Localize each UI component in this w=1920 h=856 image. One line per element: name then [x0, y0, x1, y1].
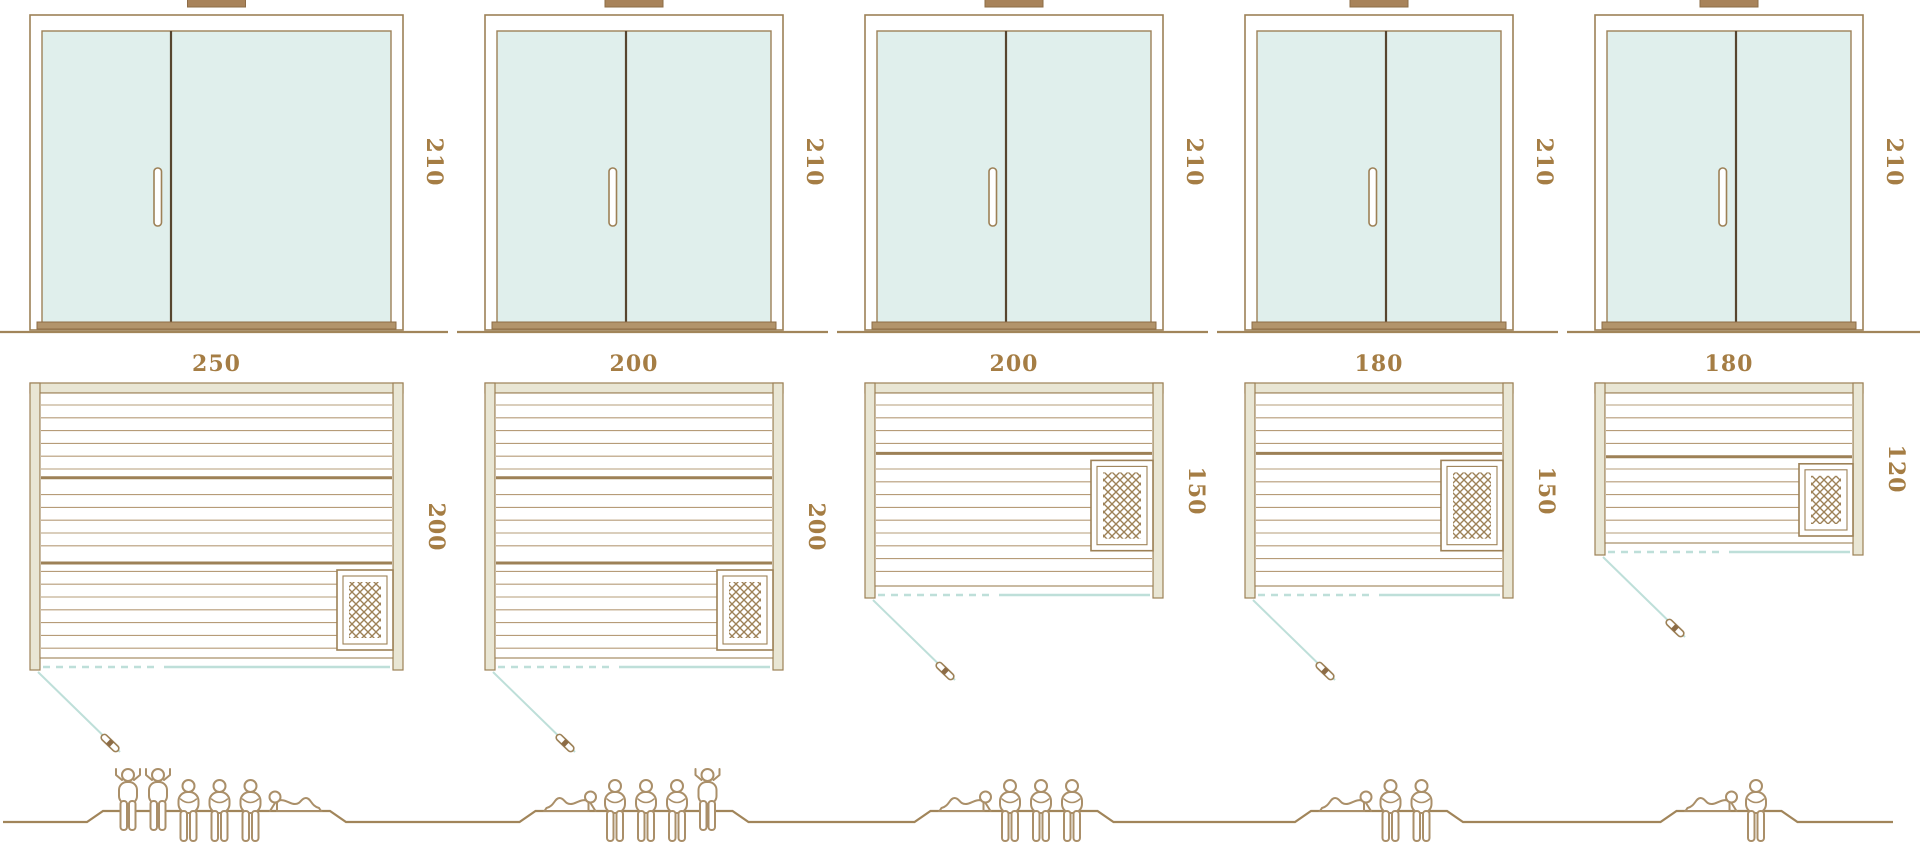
capacity-group-sauna-200x200 — [545, 769, 720, 841]
plan-width-dimension: 180 — [1705, 351, 1754, 377]
person-sitting-icon — [241, 780, 261, 841]
plan-depth-dimension: 150 — [1533, 466, 1559, 515]
door-threshold — [1602, 322, 1856, 329]
door-top-marker — [1350, 0, 1408, 7]
door-handle-icon — [154, 168, 162, 226]
plan-width-dimension: 250 — [192, 351, 241, 377]
door-handle-icon — [1369, 168, 1377, 226]
sauna-unit-sauna-200x150-floor-plan — [865, 383, 1163, 681]
door-top-marker — [188, 0, 246, 7]
door-handle-icon — [609, 168, 617, 226]
sauna-unit-sauna-250x200-door-elevation — [0, 0, 448, 332]
person-standing-icon — [116, 769, 140, 830]
person-sitting-icon — [1746, 780, 1766, 841]
heater-icon — [337, 570, 393, 650]
door-height-dimension: 210 — [1181, 138, 1207, 187]
heater-icon — [717, 570, 773, 650]
plan-depth-dimension: 200 — [803, 502, 829, 551]
person-sitting-icon — [1062, 780, 1082, 841]
heater-icon — [1799, 464, 1853, 536]
glass-panels — [42, 31, 391, 323]
heater-icon — [1091, 460, 1153, 550]
door-height-dimension: 210 — [1881, 138, 1907, 187]
person-sitting-icon — [1381, 780, 1401, 841]
door-height-dimension: 210 — [1531, 138, 1557, 187]
door-top-marker — [1700, 0, 1758, 7]
plan-depth-dimension: 120 — [1883, 445, 1909, 494]
sauna-unit-sauna-180x150-door-elevation — [1217, 0, 1558, 332]
swing-door-handle-icon — [555, 733, 575, 753]
glass-panels — [1607, 31, 1851, 323]
person-sitting-icon — [1031, 780, 1051, 841]
sauna-size-comparison-diagram: 210 250 200 210 200 200 210 200 150 210 … — [0, 0, 1920, 856]
person-standing-icon — [146, 769, 170, 830]
swing-door-handle-icon — [1665, 618, 1685, 638]
person-lying-icon — [1320, 792, 1372, 812]
door-handle-icon — [1719, 168, 1727, 226]
person-lying-icon — [270, 792, 322, 812]
heater-icon — [1441, 460, 1503, 550]
sauna-unit-sauna-250x200-floor-plan — [30, 383, 403, 753]
glass-panels — [1257, 31, 1501, 323]
person-sitting-icon — [210, 780, 230, 841]
person-sitting-icon — [605, 780, 625, 841]
swing-door-handle-icon — [1315, 661, 1335, 681]
sauna-unit-sauna-200x200-floor-plan — [485, 383, 783, 753]
door-top-marker — [605, 0, 663, 7]
door-handle-icon — [989, 168, 997, 226]
sauna-unit-sauna-180x120-floor-plan — [1595, 383, 1863, 638]
person-sitting-icon — [636, 780, 656, 841]
person-sitting-icon — [1000, 780, 1020, 841]
plan-width-dimension: 200 — [610, 351, 659, 377]
door-threshold — [492, 322, 776, 329]
person-standing-icon — [696, 769, 720, 830]
door-threshold — [1252, 322, 1506, 329]
person-lying-icon — [1686, 792, 1738, 812]
sauna-unit-sauna-200x150-door-elevation — [837, 0, 1208, 332]
person-sitting-icon — [1412, 780, 1432, 841]
plan-width-dimension: 180 — [1355, 351, 1404, 377]
person-sitting-icon — [179, 780, 199, 841]
door-height-dimension: 210 — [801, 138, 827, 187]
swing-door-handle-icon — [100, 733, 120, 753]
sauna-unit-sauna-180x120-door-elevation — [1567, 0, 1920, 332]
person-lying-icon — [545, 792, 597, 812]
glass-panels — [497, 31, 771, 323]
door-top-marker — [985, 0, 1043, 7]
person-sitting-icon — [667, 780, 687, 841]
door-height-dimension: 210 — [421, 138, 447, 187]
door-threshold — [872, 322, 1156, 329]
person-lying-icon — [940, 792, 992, 812]
capacity-group-sauna-180x120 — [1686, 780, 1767, 841]
swing-door-handle-icon — [935, 661, 955, 681]
capacity-group-sauna-250x200 — [116, 769, 321, 841]
capacity-ground-line — [3, 811, 1893, 822]
sauna-unit-sauna-180x150-floor-plan — [1245, 383, 1513, 681]
sauna-diagram-svg — [0, 0, 1920, 856]
sauna-unit-sauna-200x200-door-elevation — [457, 0, 828, 332]
plan-depth-dimension: 150 — [1183, 466, 1209, 515]
door-threshold — [37, 322, 396, 329]
plan-width-dimension: 200 — [990, 351, 1039, 377]
glass-panels — [877, 31, 1151, 323]
plan-depth-dimension: 200 — [423, 502, 449, 551]
